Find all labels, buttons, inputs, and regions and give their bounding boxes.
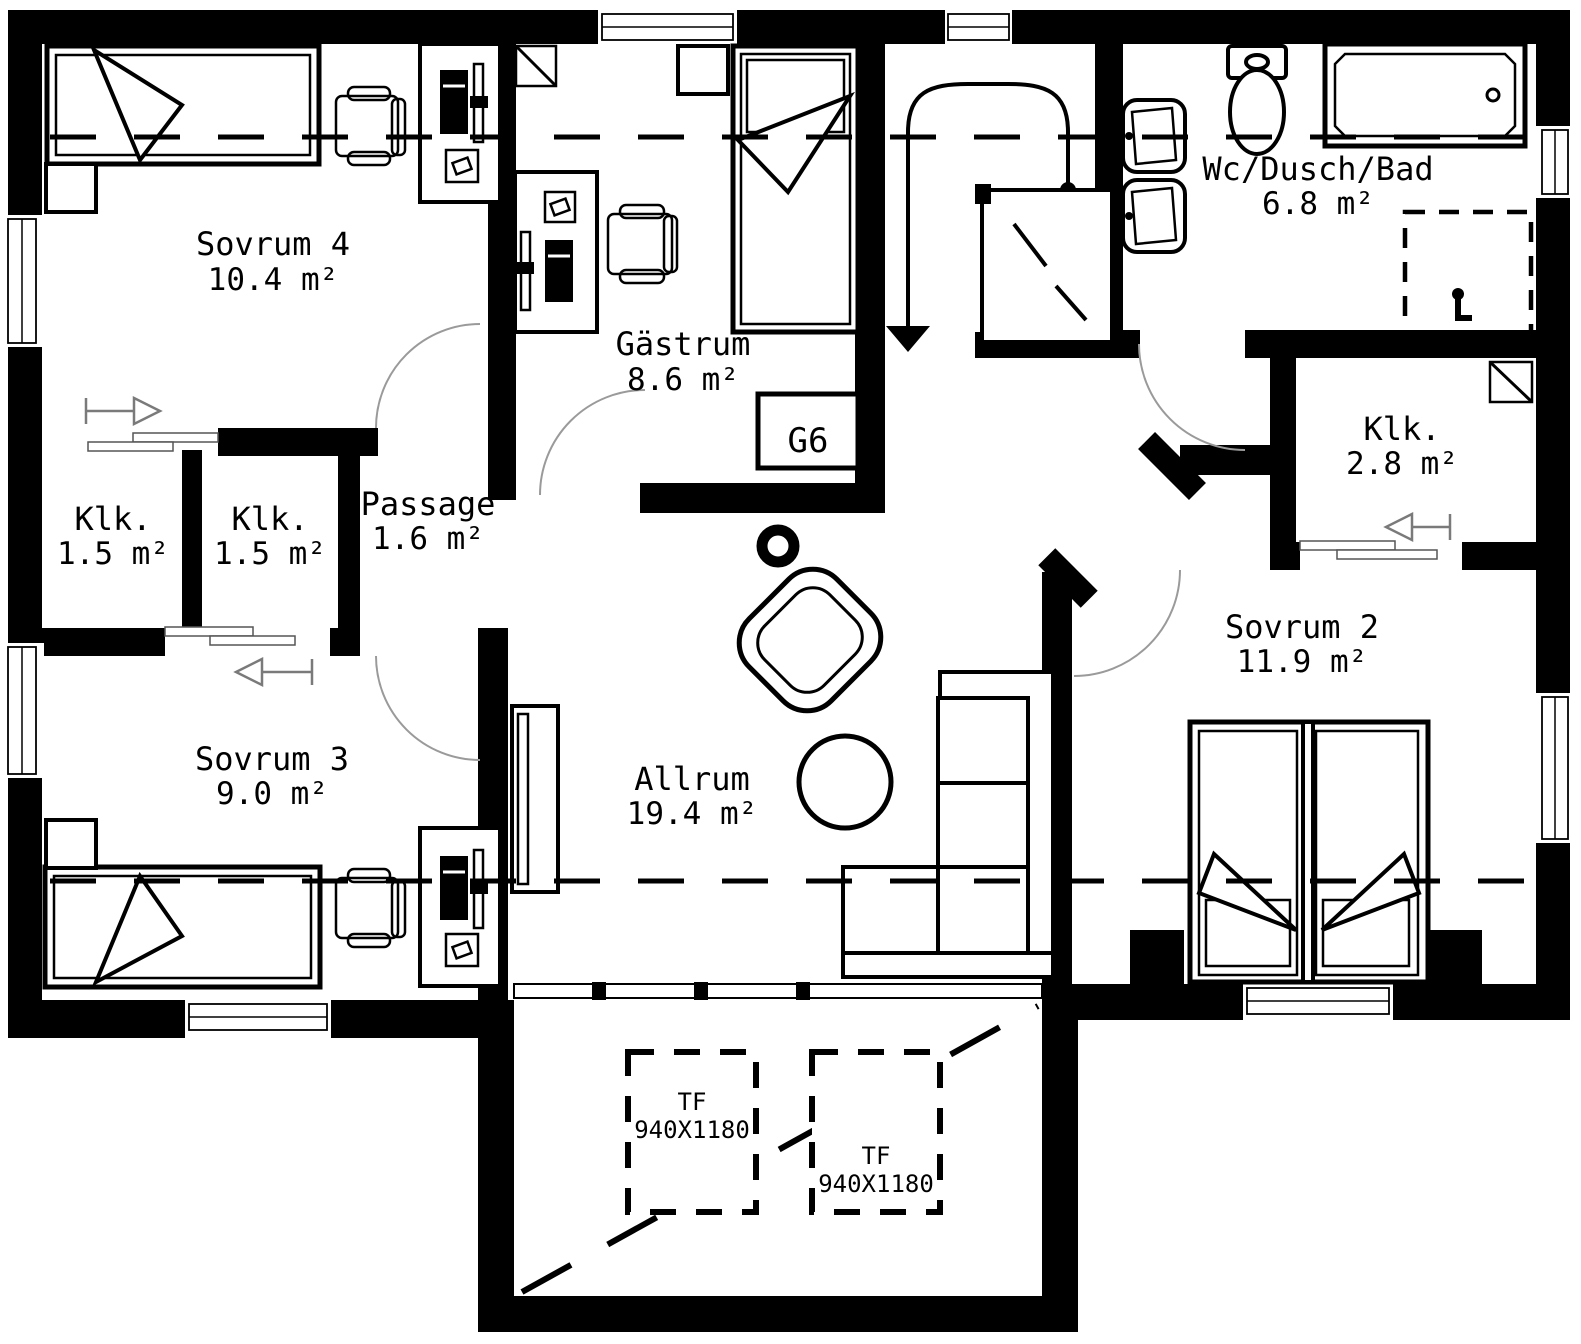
room-area-wc: 6.8 m² [1262,186,1374,222]
desk [420,44,500,202]
wardrobe-g6: G6 [758,394,858,468]
room-area-passage: 1.6 m² [372,521,484,557]
wardrobe-g6-label: G6 [788,421,829,461]
room-area-klk-b: 1.5 m² [214,536,326,572]
room-area-sovrum4: 10.4 m² [208,262,339,298]
room-label-wc: Wc/Dusch/Bad [1202,150,1433,188]
bathtub [1325,44,1525,146]
room-label-gastrum: Gästrum [616,325,751,363]
room-area-gastrum: 8.6 m² [627,362,739,398]
radiator [678,46,728,94]
bed-single [47,46,319,164]
skylight-2-code: TF [862,1142,891,1170]
nightstand [1130,930,1184,984]
nightstand [46,164,96,212]
desk [515,172,597,332]
nightstand [46,820,96,868]
bed-single [45,867,320,987]
room-label-allrum: Allrum [634,760,750,798]
sink [1123,180,1185,252]
window-bottom-sovrum3 [185,996,331,1040]
window-right-bath [1534,126,1576,198]
room-label-passage: Passage [361,485,496,523]
window-left-1 [0,215,44,347]
room-area-sovrum2: 11.9 m² [1237,644,1368,680]
room-label-sovrum4: Sovrum 4 [196,225,350,263]
room-label-sovrum3: Sovrum 3 [195,740,349,778]
window-top-2 [945,6,1012,48]
bed-single [733,46,858,332]
window-right-sovrum2 [1534,693,1576,843]
room-area-allrum: 19.4 m² [627,796,758,832]
skylight-1-size: 940X1180 [634,1116,750,1144]
tall-cabinet [512,706,558,892]
room-label-sovrum2: Sovrum 2 [1225,608,1379,646]
skylight-2-size: 940X1180 [818,1170,934,1198]
window-left-2 [0,643,44,778]
loft-railing [514,982,1042,1000]
room-area-sovrum3: 9.0 m² [216,776,328,812]
window-top-1 [598,6,737,48]
window-bottom-sovrum2 [1243,980,1393,1022]
round-table [799,736,891,828]
floor-plan-page: G6 [0,0,1581,1344]
nightstand [1428,930,1482,984]
room-area-klk-a: 1.5 m² [57,536,169,572]
skylight-1-code: TF [678,1088,707,1116]
desk [420,828,500,986]
bed-double [1190,722,1428,982]
floor-plan: G6 [0,0,1581,1344]
room-label-klk-b: Klk. [231,500,308,538]
room-area-klk-hall: 2.8 m² [1346,446,1458,482]
stair-glass-panel [982,190,1112,342]
room-label-klk-hall: Klk. [1363,410,1440,448]
room-label-klk-a: Klk. [74,500,151,538]
